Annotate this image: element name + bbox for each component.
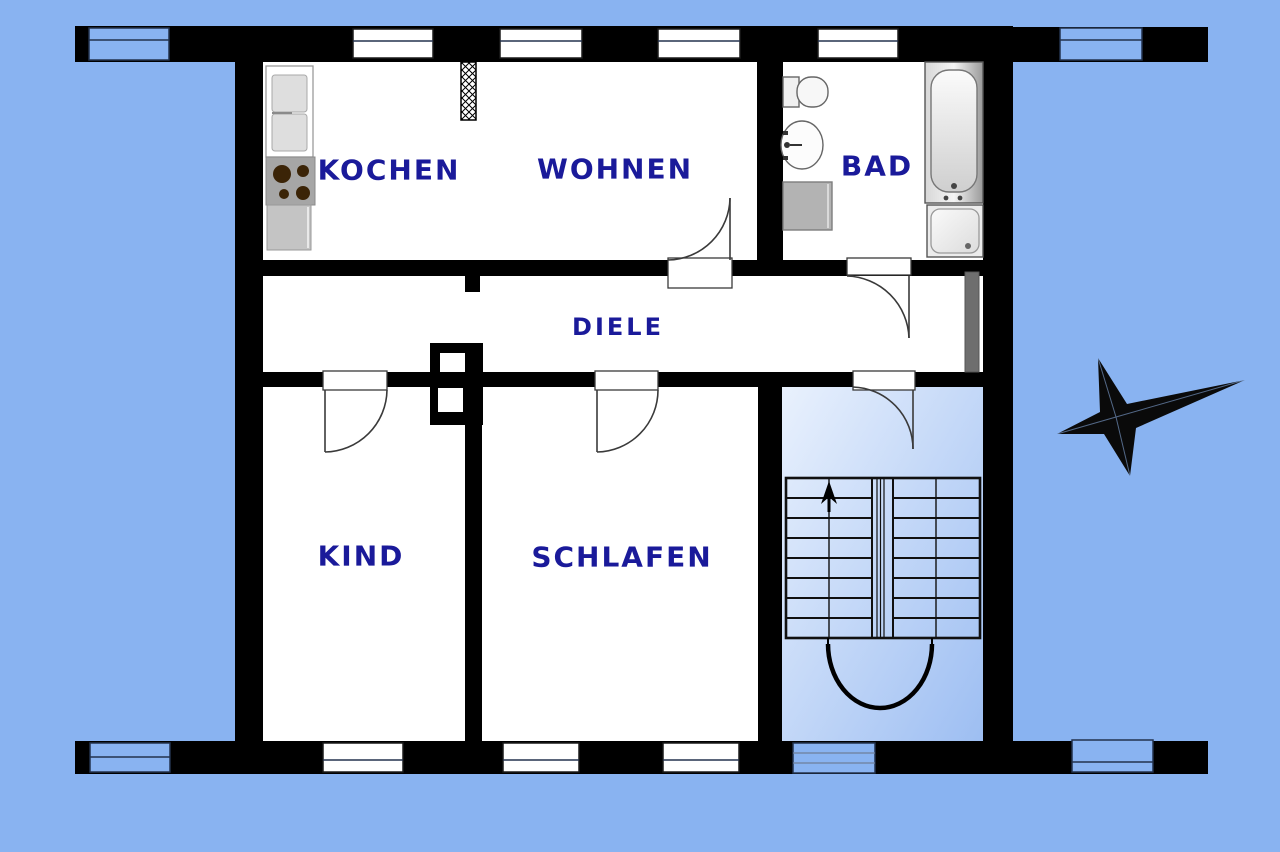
hall-cupboard xyxy=(965,272,979,372)
toilet-icon xyxy=(783,77,828,107)
floor-plan-drawing xyxy=(0,0,1280,852)
chimney-block xyxy=(430,343,483,425)
room-label-bad: BAD xyxy=(841,150,913,183)
shower-icon xyxy=(927,205,983,257)
wall-stub-diele xyxy=(465,276,480,292)
stairwell-floor xyxy=(782,387,983,741)
window-neighbor-top-right xyxy=(1060,28,1142,60)
room-label-schlafen: SCHLAFEN xyxy=(531,541,712,574)
right-wall xyxy=(983,26,1013,774)
wall-schlafen-stairs xyxy=(758,387,782,741)
window-stairwell xyxy=(793,743,875,773)
bathtub-icon xyxy=(925,62,983,203)
compass-star-icon xyxy=(1057,358,1245,476)
window-wohnen-1 xyxy=(500,29,582,58)
fridge-icon xyxy=(266,66,313,157)
window-kochen xyxy=(353,29,433,58)
room-label-diele: DIELE xyxy=(572,313,664,341)
window-neighbor-top-left xyxy=(89,28,169,60)
window-neighbor-bottom-left xyxy=(90,743,170,772)
left-wall xyxy=(235,26,263,774)
wall-kind-schlafen xyxy=(465,387,482,741)
kitchen-cabinet-icon xyxy=(267,205,311,250)
stove-icon xyxy=(266,157,315,205)
room-label-kochen: KOCHEN xyxy=(318,154,461,187)
window-wohnen-2 xyxy=(658,29,740,58)
kitchen-units xyxy=(266,66,315,250)
window-bad xyxy=(818,29,898,58)
window-schlafen-2 xyxy=(663,743,739,772)
floor-plan: KOCHEN WOHNEN BAD DIELE KIND SCHLAFEN xyxy=(0,0,1280,852)
window-neighbor-bottom-right xyxy=(1072,740,1153,772)
window-schlafen-1 xyxy=(503,743,579,772)
chimney-hatch-icon xyxy=(461,62,476,120)
room-label-kind: KIND xyxy=(318,540,405,573)
washing-machine-icon xyxy=(783,182,832,230)
room-label-wohnen: WOHNEN xyxy=(537,153,693,186)
wall-wohnen-bad xyxy=(757,62,783,276)
sink-icon xyxy=(781,121,823,169)
window-kind xyxy=(323,743,403,772)
